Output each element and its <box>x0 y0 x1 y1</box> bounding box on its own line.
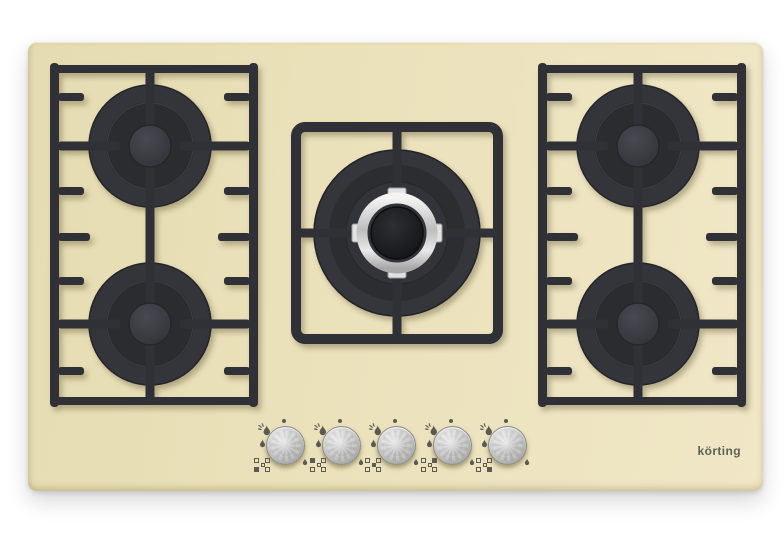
flame-low-icon <box>259 439 266 448</box>
knob-dial[interactable] <box>266 426 305 465</box>
knob-back-right[interactable] <box>424 414 480 476</box>
drip-icon <box>524 458 530 466</box>
brand-logo: körting <box>698 444 741 458</box>
flame-low-icon <box>370 439 377 448</box>
flame-low-icon <box>481 439 488 448</box>
flame-low-icon <box>426 439 433 448</box>
pan-support-grate-left <box>38 57 270 413</box>
off-dot-icon <box>504 419 508 423</box>
knob-front-left[interactable] <box>257 414 313 476</box>
flame-low-icon <box>315 439 322 448</box>
off-dot-icon <box>393 419 397 423</box>
off-dot-icon <box>449 419 453 423</box>
knob-dial[interactable] <box>433 426 472 465</box>
knob-center[interactable] <box>368 414 424 476</box>
drip-icon <box>302 458 308 466</box>
burner-position-icon <box>476 458 493 472</box>
burner-position-icon <box>310 458 327 472</box>
pan-support-grate-right <box>526 57 758 413</box>
knob-dial[interactable] <box>377 426 416 465</box>
off-dot-icon <box>282 419 286 423</box>
drip-icon <box>469 458 475 466</box>
pan-support-grate-center <box>288 117 506 349</box>
burner-cap-back-left <box>129 125 171 167</box>
burner-cap-front-left <box>129 303 171 345</box>
burner-position-icon <box>254 458 271 472</box>
knob-dial[interactable] <box>488 426 527 465</box>
burner-cap-center <box>371 207 423 259</box>
off-dot-icon <box>338 419 342 423</box>
knob-dial[interactable] <box>322 426 361 465</box>
drip-icon <box>413 458 419 466</box>
burner-cap-front-right <box>617 303 659 345</box>
burner-position-icon <box>421 458 438 472</box>
burner-cap-back-right <box>617 125 659 167</box>
knob-front-right[interactable] <box>479 414 535 476</box>
drip-icon <box>358 458 364 466</box>
knob-back-left[interactable] <box>313 414 369 476</box>
burner-position-icon <box>365 458 382 472</box>
product-photo-stage: körting <box>0 0 784 548</box>
